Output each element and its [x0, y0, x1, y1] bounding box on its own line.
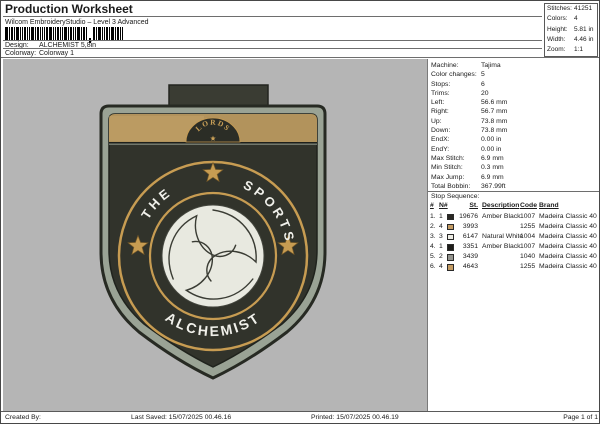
stop-sequence-row: 2.439931255Madeira Classic 40 [428, 222, 600, 232]
barcode-bar [64, 27, 67, 41]
stop-row-num: 1. [430, 212, 436, 222]
col-header-brand: Brand [539, 202, 559, 209]
barcode-bar [35, 27, 36, 41]
summary-value: 41251 [574, 4, 592, 14]
barcode-bar [22, 27, 23, 41]
barcode-bar [73, 27, 74, 41]
stop-row-num: 2. [430, 222, 436, 232]
badge-artwork: LORDS THE SPORTS [97, 84, 329, 384]
barcode-bar [14, 27, 15, 41]
machine-info-value: 6.9 mm [481, 173, 504, 182]
colorway-row: Colorway:Colorway 1 [5, 50, 74, 57]
machine-info-value: 6 [481, 80, 485, 89]
design-summary-box: Stitches:41251Colors:4Height:5.81 inWidt… [544, 3, 598, 57]
stop-row-stitches: 3351 [452, 242, 478, 252]
machine-info-row: EndY:0.00 in [428, 145, 600, 154]
barcode-bar [70, 27, 72, 41]
stop-row-thread-num: 1 [439, 242, 443, 252]
machine-info-label: Max Stitch: [431, 154, 465, 163]
machine-info-row: Min Stitch:0.3 mm [428, 163, 600, 172]
stop-row-brand: Madeira Classic 40 [539, 222, 597, 232]
stop-row-num: 3. [430, 232, 436, 242]
barcode-bar [5, 27, 8, 41]
machine-info-row: Max Stitch:6.9 mm [428, 154, 600, 163]
machine-info-label: Machine: [431, 61, 459, 70]
machine-info-value: 0.3 mm [481, 163, 504, 172]
barcode-bar [42, 27, 43, 41]
summary-label: Stitches: [547, 4, 572, 14]
barcode-bar [117, 27, 119, 41]
band-edge-line2 [109, 144, 317, 145]
stop-row-thread-num: 1 [439, 212, 443, 222]
barcode-bar [57, 27, 59, 41]
stop-row-code: 1255 [520, 222, 535, 232]
footer: Created By: Last Saved: 15/07/2025 00.46… [1, 411, 600, 424]
barcode-bar [77, 27, 80, 41]
stop-row-description: Amber Black [482, 242, 521, 252]
machine-info-row: EndX:0.00 in [428, 135, 600, 144]
barcode-bar [16, 27, 19, 41]
machine-info-label: EndX: [431, 135, 450, 144]
design-preview-canvas: LORDS THE SPORTS [3, 59, 428, 411]
machine-info-value: 73.8 mm [481, 117, 507, 126]
barcode-bar [27, 27, 28, 41]
stop-row-brand: Madeira Classic 40 [539, 262, 597, 272]
machine-info-value: 5 [481, 70, 485, 79]
created-by-label: Created By: [5, 412, 41, 424]
colorway-value: Colorway 1 [39, 50, 74, 57]
summary-row: Height:5.81 in [545, 25, 597, 35]
barcode-bar [104, 27, 105, 41]
col-header-stitches: St. [452, 202, 478, 209]
machine-info-row: Stops:6 [428, 80, 600, 89]
col-header-code: Code [520, 202, 537, 209]
stop-sequence-row: 3.36147Natural White1004Madeira Classic … [428, 232, 600, 242]
machine-info-row: Up:73.8 mm [428, 117, 600, 126]
barcode-bar [115, 27, 116, 41]
stop-row-num: 5. [430, 252, 436, 262]
divider [428, 191, 600, 192]
stop-row-brand: Madeira Classic 40 [539, 212, 597, 222]
barcode-bar [40, 27, 41, 41]
stop-row-stitches: 19676 [452, 212, 478, 222]
stop-sequence-title: Stop Sequence: [431, 193, 479, 200]
page-title: Production Worksheet [5, 2, 133, 16]
summary-label: Width: [547, 35, 565, 45]
barcode-bar [20, 27, 21, 41]
machine-info-value: 0.00 in [481, 145, 501, 154]
stop-row-stitches: 6147 [452, 232, 478, 242]
stop-sequence-rows: 1.119676Amber Black1007Madeira Classic 4… [428, 212, 600, 273]
barcode-bar [120, 27, 121, 41]
barcode-bar [53, 27, 54, 41]
stop-sequence-row: 5.234391040Madeira Classic 40 [428, 252, 600, 262]
barcode-bar [44, 27, 45, 41]
barcode-bar [93, 27, 95, 41]
summary-row: Zoom:1:1 [545, 45, 597, 55]
barcode-bar [46, 27, 48, 41]
stop-row-thread-num: 3 [439, 232, 443, 242]
col-header-num: # [430, 202, 434, 209]
summary-value: 5.81 in [574, 25, 594, 35]
barcode-bar [81, 27, 82, 41]
barcode-bar [31, 27, 34, 41]
header-divider [1, 57, 600, 58]
machine-info-label: Right: [431, 107, 449, 116]
machine-info-row: Left:56.6 mm [428, 98, 600, 107]
machine-info-panel: Machine:TajimaColor changes:5Stops:6Trim… [428, 59, 600, 411]
machine-info-label: Min Stitch: [431, 163, 463, 172]
stop-row-code: 1255 [520, 262, 535, 272]
divider [3, 48, 542, 49]
stop-row-stitches: 4643 [452, 262, 478, 272]
summary-label: Colors: [547, 14, 568, 24]
stop-row-stitches: 3439 [452, 252, 478, 262]
stop-row-code: 1007 [520, 242, 535, 252]
summary-value: 1:1 [574, 45, 583, 55]
summary-row: Colors:4 [545, 14, 597, 24]
barcode-bar [83, 27, 85, 41]
machine-info-list: Machine:TajimaColor changes:5Stops:6Trim… [428, 61, 600, 191]
machine-info-row: Total Bobbin:367.99ft [428, 182, 600, 191]
machine-info-row: Color changes:5 [428, 70, 600, 79]
barcode-bar [24, 27, 26, 41]
col-header-thread-num: N# [439, 202, 448, 209]
summary-label: Zoom: [547, 45, 565, 55]
barcode-bar [62, 27, 63, 41]
machine-info-value: 56.7 mm [481, 107, 507, 116]
barcode-bar [109, 27, 110, 41]
barcode-bar [55, 27, 56, 41]
machine-info-row: Right:56.7 mm [428, 107, 600, 116]
stop-row-description: Amber Black [482, 212, 521, 222]
machine-info-value: 367.99ft [481, 182, 506, 191]
barcode-bar [98, 27, 101, 41]
machine-info-row: Machine:Tajima [428, 61, 600, 70]
stop-row-description: Natural White [482, 232, 523, 242]
badge-tab [169, 85, 268, 107]
summary-row: Width:4.46 in [545, 35, 597, 45]
summary-label: Height: [547, 25, 568, 35]
barcode-bar [11, 27, 13, 41]
machine-info-label: Total Bobbin: [431, 182, 470, 191]
barcode-bar [37, 27, 39, 41]
machine-info-value: 0.00 in [481, 135, 501, 144]
stop-row-num: 6. [430, 262, 436, 272]
machine-info-row: Down:73.8 mm [428, 126, 600, 135]
stop-row-code: 1004 [520, 232, 535, 242]
summary-value: 4 [574, 14, 578, 24]
barcode-bar [111, 27, 114, 41]
stop-row-thread-num: 4 [439, 222, 443, 232]
barcode-bar [9, 27, 10, 41]
last-saved-label: Last Saved: 15/07/2025 00.46.16 [131, 412, 231, 424]
stop-row-brand: Madeira Classic 40 [539, 232, 597, 242]
stop-row-thread-num: 4 [439, 262, 443, 272]
machine-info-label: Color changes: [431, 70, 477, 79]
machine-info-label: Down: [431, 126, 450, 135]
barcode-bar [29, 27, 30, 41]
barcode-bar [75, 27, 76, 41]
stop-row-num: 4. [430, 242, 436, 252]
barcode-bar [86, 27, 87, 41]
machine-info-value: 56.6 mm [481, 98, 507, 107]
barcode-bar [49, 27, 52, 41]
stop-sequence-row: 6.446431255Madeira Classic 40 [428, 262, 600, 272]
stop-sequence-row: 1.119676Amber Black1007Madeira Classic 4… [428, 212, 600, 222]
machine-info-value: 20 [481, 89, 489, 98]
machine-info-row: Max Jump:6.9 mm [428, 173, 600, 182]
machine-info-label: Up: [431, 117, 442, 126]
stop-row-brand: Madeira Classic 40 [539, 242, 597, 252]
divider [3, 16, 542, 17]
col-header-description: Description [482, 202, 519, 209]
colorway-label: Colorway: [5, 50, 39, 57]
machine-info-value: 73.8 mm [481, 126, 507, 135]
machine-info-label: Trims: [431, 89, 450, 98]
stop-row-code: 1040 [520, 252, 535, 262]
barcode-bar [106, 27, 108, 41]
stop-row-thread-num: 2 [439, 252, 443, 262]
machine-info-label: Stops: [431, 80, 450, 89]
stop-row-stitches: 3993 [452, 222, 478, 232]
barcode-bar [122, 27, 123, 41]
stop-row-brand: Madeira Classic 40 [539, 252, 597, 262]
machine-info-label: Left: [431, 98, 444, 107]
machine-info-value: 6.9 mm [481, 154, 504, 163]
stop-row-code: 1007 [520, 212, 535, 222]
barcode-bar [102, 27, 103, 41]
machine-info-row: Trims:20 [428, 89, 600, 98]
production-worksheet-page: Production Worksheet Wilcom EmbroiderySt… [0, 0, 600, 424]
stop-sequence-row: 4.13351Amber Black1007Madeira Classic 40 [428, 242, 600, 252]
machine-info-value: Tajima [481, 61, 501, 70]
summary-value: 4.46 in [574, 35, 594, 45]
summary-row: Stitches:41251 [545, 4, 597, 14]
page-number: Page 1 of 1 [563, 412, 598, 424]
barcode-bar [68, 27, 69, 41]
machine-info-label: EndY: [431, 145, 449, 154]
barcode-bar [96, 27, 97, 41]
barcode-bar [60, 27, 61, 41]
machine-info-label: Max Jump: [431, 173, 464, 182]
summary-rows: Stitches:41251Colors:4Height:5.81 inWidt… [545, 4, 597, 55]
app-subtitle: Wilcom EmbroideryStudio – Level 3 Advanc… [5, 19, 149, 26]
stop-sequence-header-row: # N# St. Description Code Brand [428, 202, 600, 212]
printed-label: Printed: 15/07/2025 00.46.19 [311, 412, 399, 424]
